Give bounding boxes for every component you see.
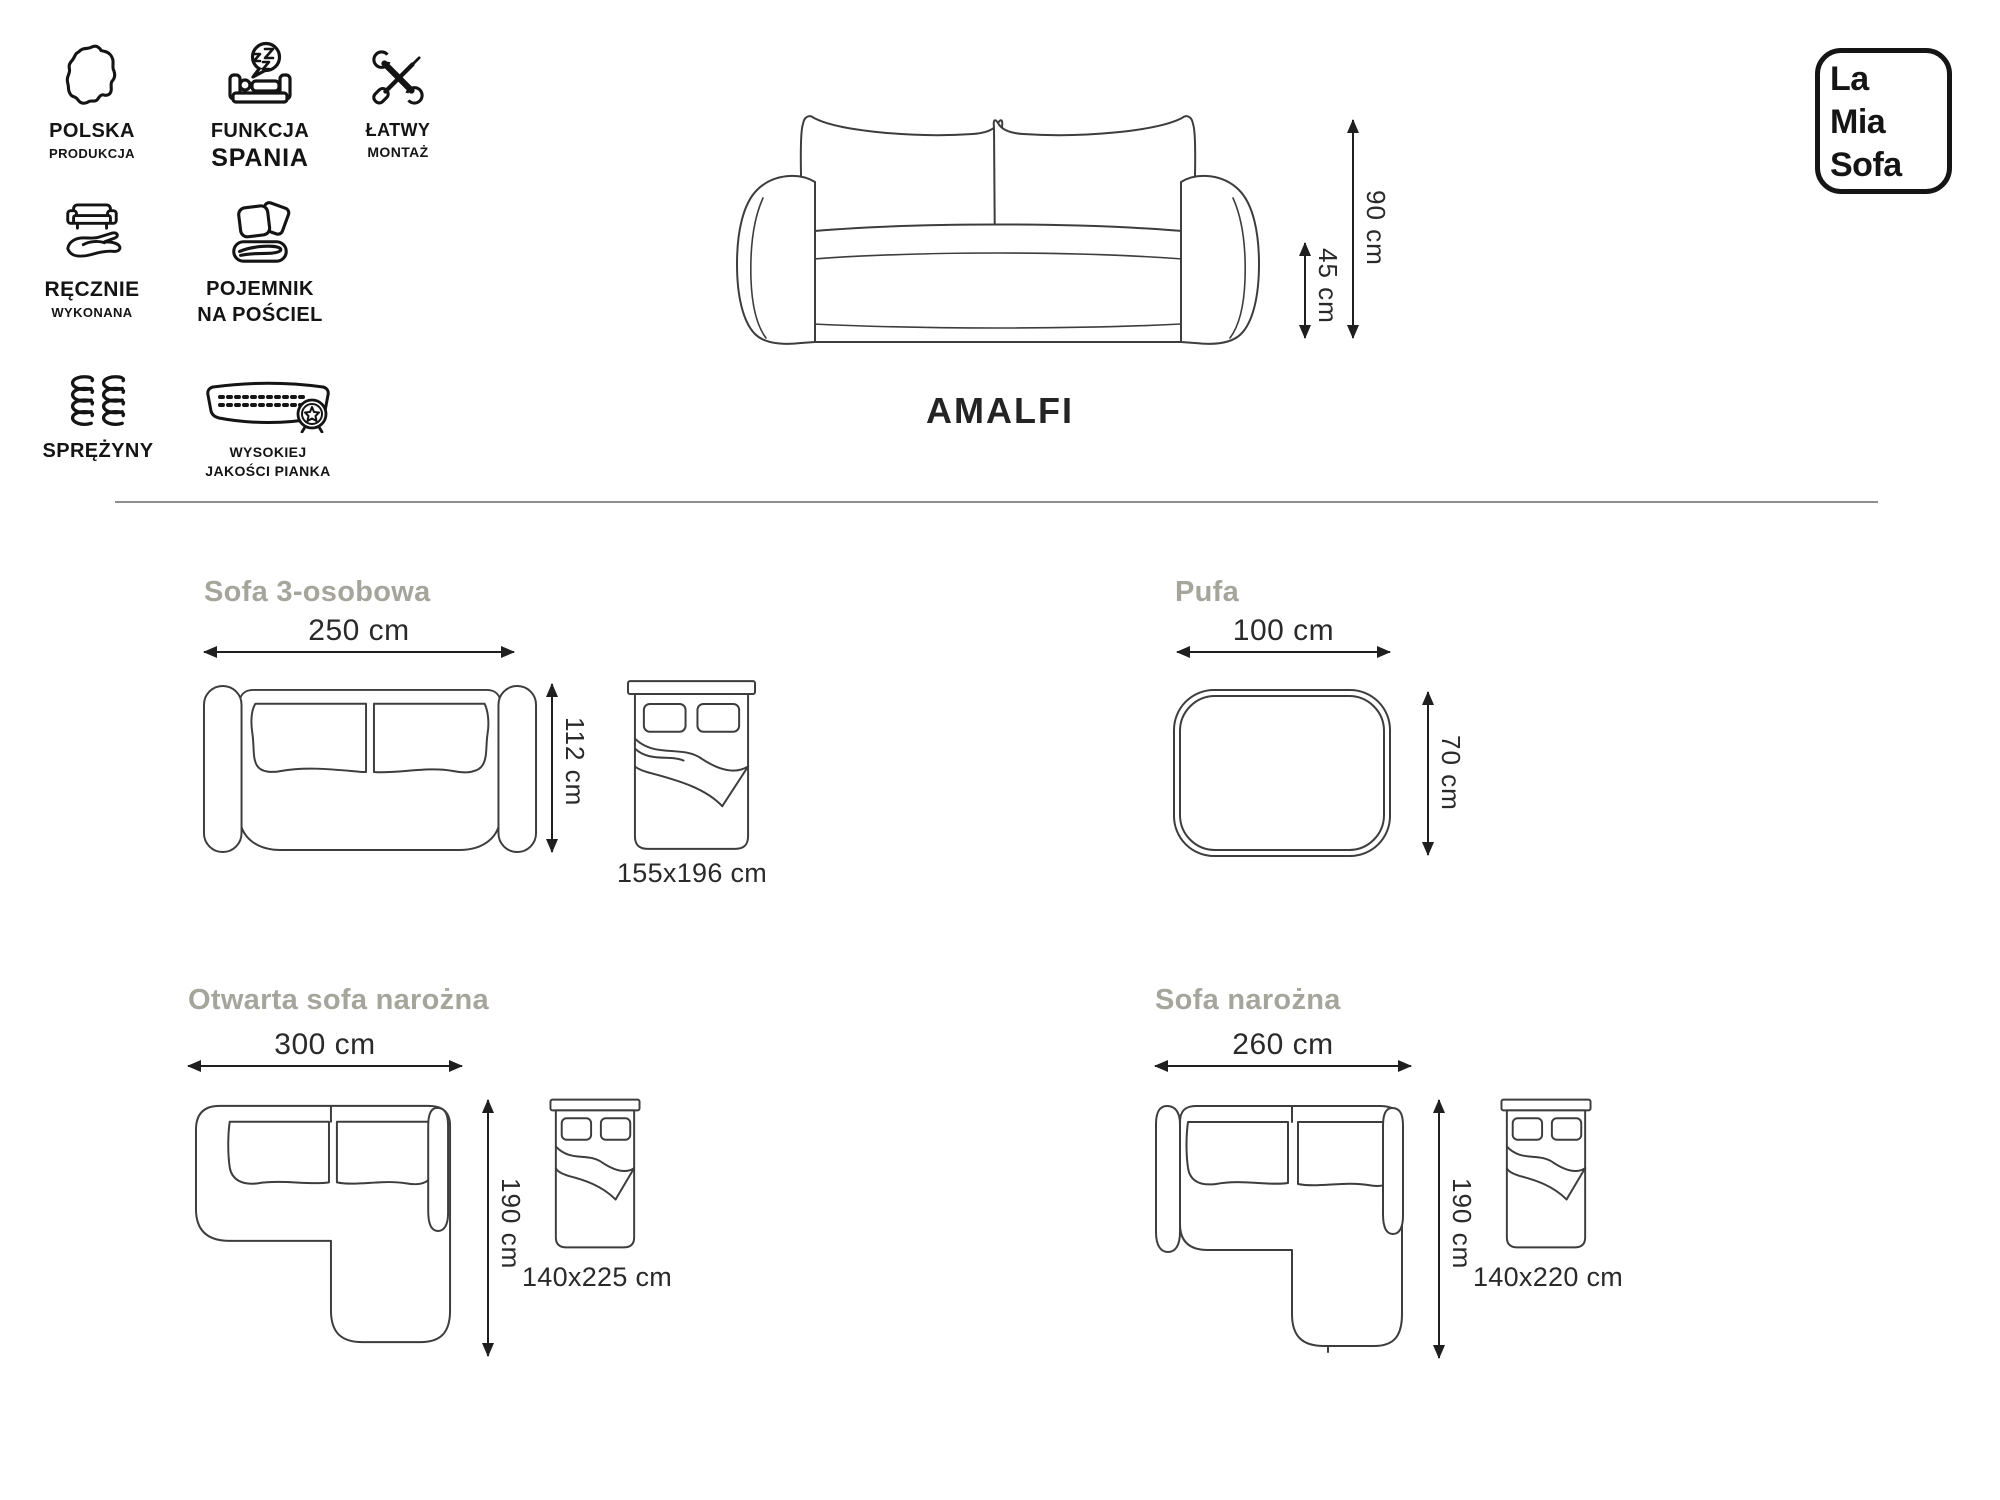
- feature-label: RĘCZNIE: [10, 278, 174, 302]
- variant-title: Pufa: [1175, 576, 1239, 609]
- width-label: 100 cm: [1177, 614, 1390, 648]
- depth-arrow: [487, 1100, 489, 1356]
- high-quality-foam-icon: [204, 379, 332, 433]
- springs-icon: [67, 373, 129, 429]
- corner-sofa-open-drawing: [186, 1096, 464, 1360]
- feature-sublabel: MONTAŻ: [332, 144, 464, 160]
- bed-size-label: 140x220 cm: [1455, 1262, 1641, 1293]
- product-name: AMALFI: [850, 390, 1150, 432]
- pufa-top-view-drawing: [1172, 688, 1392, 858]
- variant-title: Sofa 3-osobowa: [204, 576, 431, 609]
- handmade-sofa-hand-icon: [60, 202, 124, 266]
- width-label: 260 cm: [1155, 1028, 1411, 1062]
- width-arrow: [204, 651, 514, 653]
- width-arrow: [1177, 651, 1390, 653]
- feature-sublabel: WYKONANA: [10, 305, 174, 320]
- sofa-top-view-drawing: [202, 678, 538, 860]
- depth-label: 190 cm: [495, 1178, 526, 1269]
- seat-height-label: 45 cm: [1312, 248, 1343, 324]
- brand-line: Mia: [1830, 101, 1947, 144]
- feature-recznie-wykonana: RĘCZNIE WYKONANA: [10, 200, 174, 320]
- bed-size-label: 155x196 cm: [599, 858, 785, 889]
- variant-title: Otwarta sofa narożna: [188, 984, 489, 1017]
- brand-line: La: [1830, 58, 1947, 101]
- feature-label: POJEMNIK: [178, 278, 342, 301]
- bedding-storage-icon: [226, 199, 294, 267]
- section-divider: [115, 501, 1878, 503]
- sleep-function-icon: [225, 40, 295, 108]
- depth-label: 112 cm: [559, 717, 590, 806]
- feature-funkcja-spania: FUNKCJA SPANIA: [178, 38, 342, 173]
- bed-size-drawing: [1500, 1097, 1592, 1251]
- width-label: 300 cm: [188, 1028, 462, 1062]
- width-arrow: [188, 1065, 462, 1067]
- bed-size-drawing: [626, 679, 757, 852]
- feature-label: ŁATWY: [332, 120, 464, 141]
- feature-latwy-montaz: ŁATWY MONTAŻ: [332, 46, 464, 160]
- brand-line: Sofa: [1830, 144, 1947, 187]
- depth-arrow: [1438, 1100, 1440, 1358]
- variant-title: Sofa narożna: [1155, 984, 1341, 1017]
- feature-label: POLSKA: [10, 120, 174, 143]
- width-arrow: [1155, 1065, 1411, 1067]
- brand-logo: La Mia Sofa: [1815, 48, 1952, 194]
- poland-map-icon: [63, 43, 121, 107]
- seat-height-arrow: [1304, 243, 1306, 338]
- feature-sprezyny: SPRĘŻYNY: [16, 372, 180, 466]
- width-label: 250 cm: [204, 614, 514, 648]
- depth-arrow: [1427, 692, 1429, 855]
- feature-sublabel: JAKOŚCI PIANKA: [170, 463, 366, 479]
- sofa-front-view-drawing: [733, 112, 1263, 348]
- total-height-arrow: [1352, 120, 1354, 338]
- feature-label: SPRĘŻYNY: [16, 440, 180, 463]
- feature-pojemnik-na-posciel: POJEMNIK NA POŚCIEL: [178, 198, 342, 327]
- corner-sofa-drawing: [1152, 1096, 1414, 1362]
- feature-sublabel: NA POŚCIEL: [178, 304, 342, 327]
- amalfi-dimension-sheet: POLSKA PRODUKCJA: [0, 0, 2000, 1500]
- bed-size-drawing: [549, 1097, 641, 1251]
- feature-wysokiej-jakosci-pianka: WYSOKIEJ JAKOŚCI PIANKA: [170, 378, 366, 479]
- feature-label: WYSOKIEJ: [170, 444, 366, 460]
- depth-label: 190 cm: [1446, 1178, 1477, 1269]
- depth-label: 70 cm: [1435, 735, 1466, 811]
- easy-assembly-tools-icon: [371, 49, 425, 107]
- feature-sublabel: SPANIA: [178, 144, 342, 173]
- feature-polska-produkcja: POLSKA PRODUKCJA: [10, 40, 174, 161]
- depth-arrow: [551, 684, 553, 852]
- feature-label: FUNKCJA: [178, 120, 342, 143]
- total-height-label: 90 cm: [1360, 190, 1391, 266]
- bed-size-label: 140x225 cm: [504, 1262, 690, 1293]
- feature-sublabel: PRODUKCJA: [10, 146, 174, 161]
